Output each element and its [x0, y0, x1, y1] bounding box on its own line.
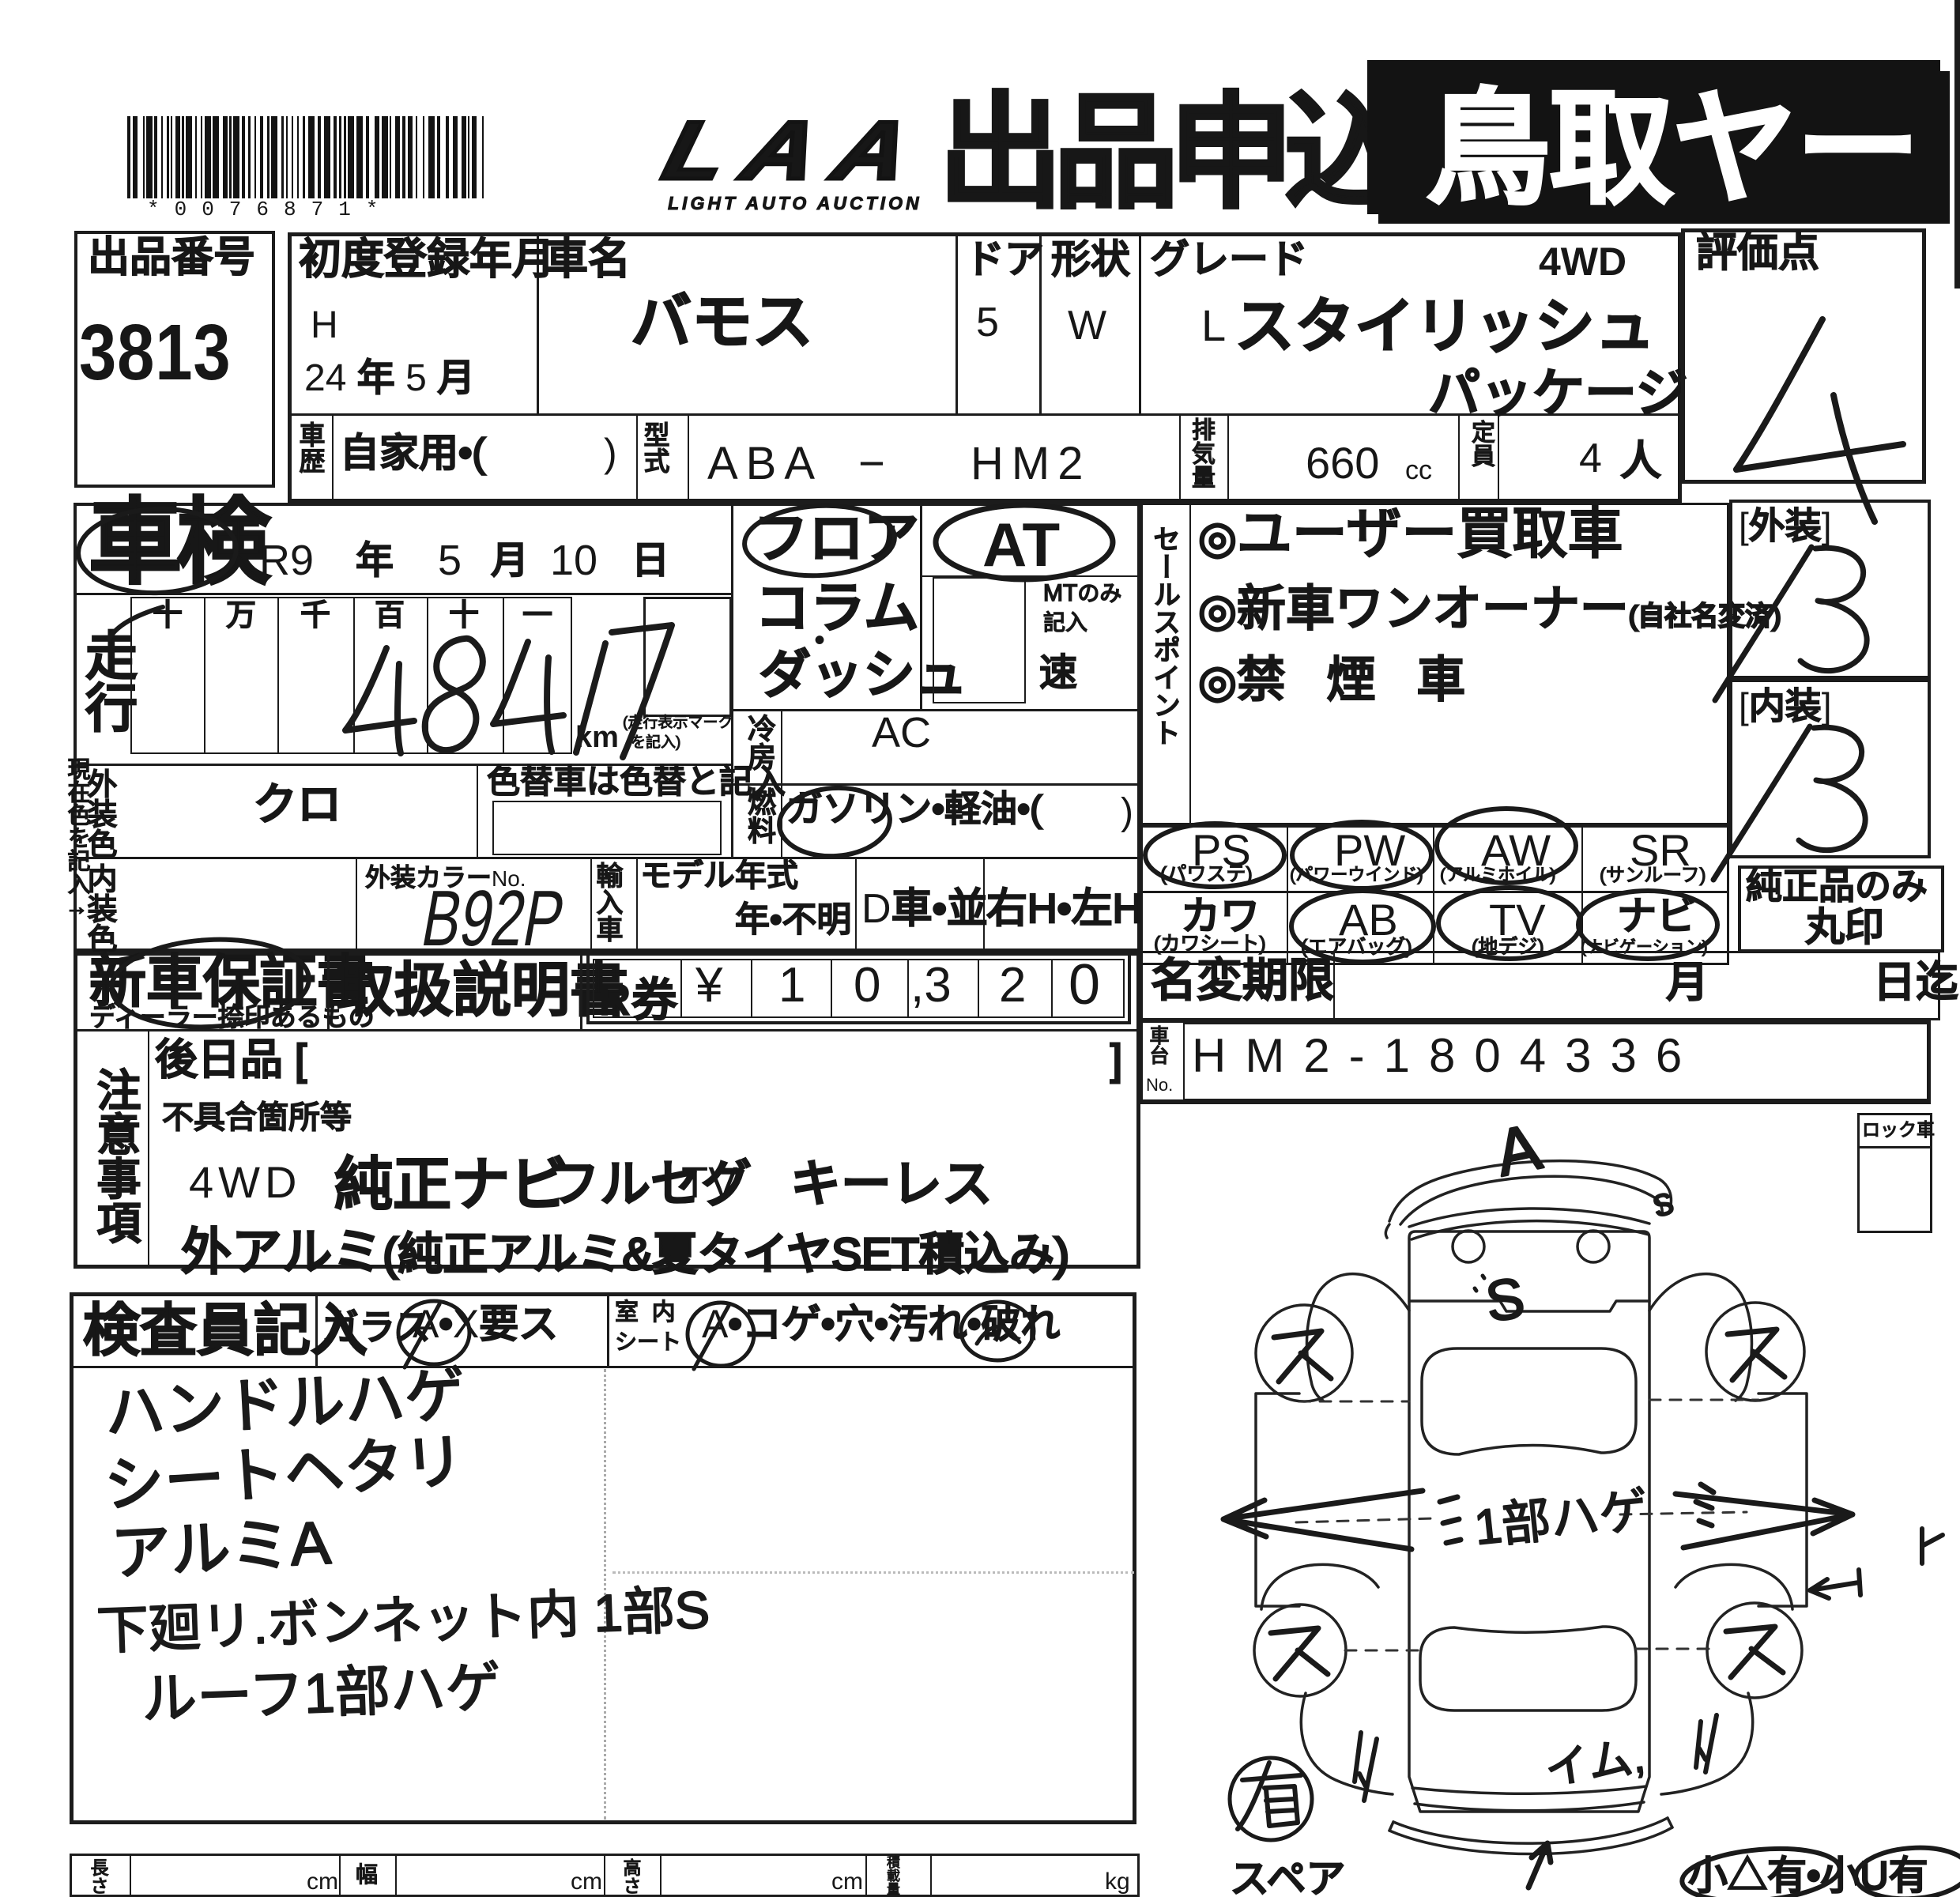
svg-text:A: A	[1490, 1111, 1547, 1190]
svg-text:S: S	[1482, 1266, 1528, 1334]
svg-text:イム,: イム,	[1542, 1731, 1648, 1794]
svg-text:B92P: B92P	[416, 873, 571, 962]
svg-text:1部ハゲ: 1部ハゲ	[1472, 1483, 1650, 1556]
svg-text:アルミA: アルミA	[109, 1510, 332, 1588]
svg-text:s: s	[1647, 1178, 1678, 1226]
svg-text:ルーフ1部ハゲ: ルーフ1部ハゲ	[141, 1656, 502, 1730]
svg-text:下廻リ.ボンネット内 1部S: 下廻リ.ボンネット内 1部S	[96, 1580, 710, 1660]
